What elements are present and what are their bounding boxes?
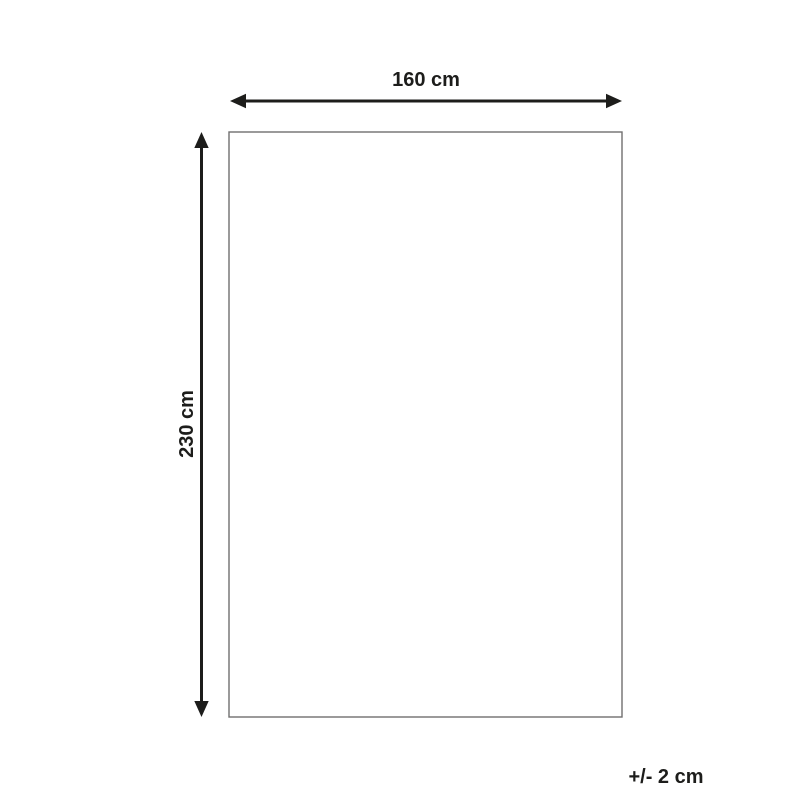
width-arrow-head-left: [230, 94, 246, 108]
width-dimension-arrow: [230, 94, 622, 108]
height-arrow-head-bottom: [194, 701, 208, 717]
diagram-canvas: [0, 0, 800, 800]
tolerance-label: +/- 2 cm: [606, 764, 726, 790]
product-outline-rect: [229, 132, 622, 717]
width-arrow-head-right: [606, 94, 622, 108]
height-arrow-head-top: [194, 132, 208, 148]
width-dimension-label: 160 cm: [366, 67, 486, 93]
dimension-diagram: 160 cm 230 cm +/- 2 cm: [0, 0, 800, 800]
height-dimension-label: 230 cm: [174, 364, 200, 484]
